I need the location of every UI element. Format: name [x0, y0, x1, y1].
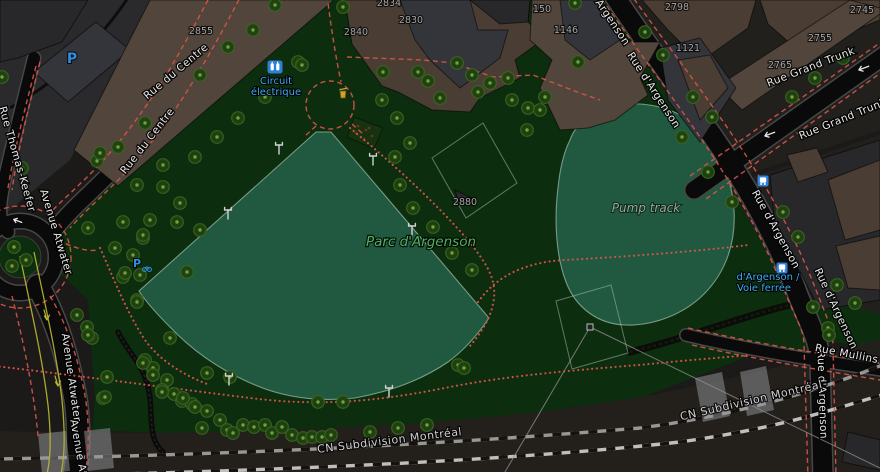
tree-icon	[157, 181, 170, 194]
tree-icon	[247, 24, 260, 37]
tree-icon	[194, 224, 207, 237]
tree-icon	[849, 297, 862, 310]
tree-icon	[412, 66, 425, 79]
tree-icon	[8, 241, 21, 254]
poi-blue-label: Circuit	[260, 76, 292, 87]
tree-icon	[823, 329, 836, 342]
tree-icon	[706, 111, 719, 124]
tree-icon	[171, 216, 184, 229]
tree-icon	[139, 117, 152, 130]
tree-icon	[164, 332, 177, 345]
tree-icon	[101, 371, 114, 384]
tree-icon	[502, 72, 515, 85]
tree-icon	[521, 124, 534, 137]
poi-blue-label: Voie ferrée	[737, 282, 791, 294]
tree-icon	[131, 179, 144, 192]
tree-icon	[296, 59, 309, 72]
tree-icon	[427, 221, 440, 234]
tree-icon	[201, 405, 214, 418]
tree-icon	[407, 202, 420, 215]
tree-icon	[71, 309, 84, 322]
tree-icon	[177, 392, 190, 405]
tree-icon	[466, 69, 479, 82]
tree-icon	[451, 57, 464, 70]
tree-icon	[522, 102, 535, 115]
tree-icon	[676, 131, 689, 144]
house-number-label: 2755	[808, 33, 832, 44]
tree-icon	[404, 137, 417, 150]
tree-icon	[82, 329, 95, 342]
tree-icon	[156, 386, 169, 399]
tree-icon	[109, 242, 122, 255]
house-number-label: 2840	[344, 27, 368, 38]
tree-icon	[174, 197, 187, 210]
tree-icon	[376, 94, 389, 107]
tree-icon	[792, 231, 805, 244]
tree-icon	[484, 77, 497, 90]
tree-icon	[786, 91, 799, 104]
tree-icon	[94, 147, 107, 160]
parking-letter-label: P	[133, 257, 141, 270]
map-canvas[interactable]: Rue du CentreRue du CentreRue Thomas-Kee…	[0, 0, 880, 472]
tree-icon	[112, 141, 125, 154]
tree-icon	[134, 269, 147, 282]
tree-icon	[222, 41, 235, 54]
bus-stop-icon	[758, 176, 769, 187]
tree-icon	[137, 229, 150, 242]
tree-icon	[194, 69, 207, 82]
tree-icon	[232, 112, 245, 125]
tree-icon	[144, 214, 157, 227]
tree-icon	[391, 112, 404, 125]
tree-icon	[572, 56, 585, 69]
tree-icon	[181, 266, 194, 279]
tree-icon	[777, 206, 790, 219]
tree-icon	[394, 179, 407, 192]
house-number-label: 2798	[665, 2, 689, 13]
tree-icon	[196, 422, 209, 435]
tree-icon	[807, 301, 820, 314]
house-number-label: 150	[533, 4, 551, 15]
house-number-label: 2765	[768, 60, 792, 71]
tree-icon	[137, 357, 150, 370]
tree-icon	[0, 71, 8, 84]
tree-icon	[458, 362, 471, 375]
tree-icon	[337, 396, 350, 409]
tree-icon	[131, 296, 144, 309]
poi-blue-label: électrique	[251, 86, 301, 98]
house-number-label: 2855	[189, 26, 213, 37]
house-number-label: 1121	[676, 43, 700, 54]
tree-icon	[119, 267, 132, 280]
tree-icon	[189, 401, 202, 414]
tree-icon	[726, 196, 739, 209]
house-number-label: 1146	[554, 25, 578, 36]
tree-icon	[389, 151, 402, 164]
tree-icon	[6, 260, 19, 273]
tree-icon	[211, 131, 224, 144]
tree-icon	[506, 94, 519, 107]
tree-icon	[157, 159, 170, 172]
tree-icon	[434, 92, 447, 105]
house-number-label: 2830	[399, 15, 423, 26]
tree-icon	[472, 86, 485, 99]
tree-icon	[117, 216, 130, 229]
house-number-label: 2834	[377, 0, 401, 9]
tree-icon	[269, 0, 282, 11]
tree-icon	[657, 49, 670, 62]
pump-track-label: Pump track	[612, 201, 682, 215]
tree-icon	[147, 369, 160, 382]
tree-icon	[639, 26, 652, 39]
tree-icon	[687, 91, 700, 104]
tree-icon	[569, 0, 582, 9]
map-svg: Rue du CentreRue du CentreRue Thomas-Kee…	[0, 0, 880, 472]
tree-icon	[99, 391, 112, 404]
tree-icon	[422, 75, 435, 88]
park-name-label: Parc d'Argenson	[366, 234, 476, 250]
house-number-label: 2745	[850, 5, 874, 16]
poi-blue-label: d'Argenson /	[737, 272, 801, 283]
tree-icon	[325, 429, 338, 442]
tree-icon	[201, 367, 214, 380]
tree-icon	[82, 222, 95, 235]
tree-icon	[20, 254, 33, 267]
parking-letter-label: P	[67, 51, 77, 67]
power-pole-icon	[587, 324, 593, 330]
house-number-label: 2880	[453, 197, 477, 208]
tree-icon	[224, 371, 237, 384]
tree-icon	[539, 91, 552, 104]
ev-charging-icon	[268, 61, 283, 74]
tree-icon	[189, 151, 202, 164]
tree-icon	[466, 264, 479, 277]
tree-icon	[337, 1, 350, 14]
tree-icon	[377, 66, 390, 79]
tree-icon	[534, 104, 547, 117]
tree-icon	[312, 396, 325, 409]
tree-icon	[702, 166, 715, 179]
